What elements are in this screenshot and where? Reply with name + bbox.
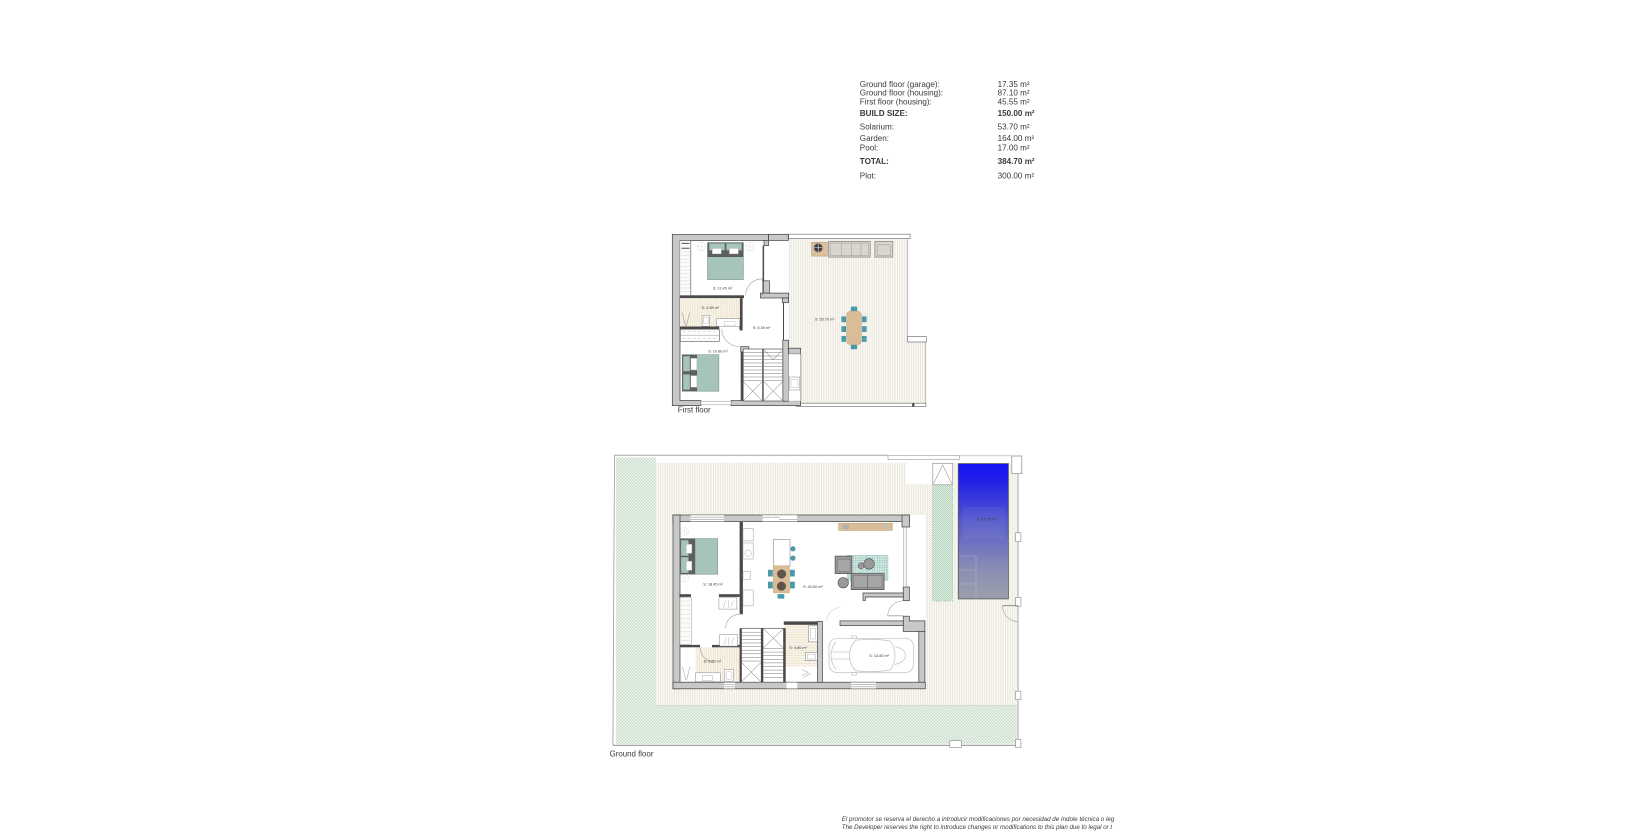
- svg-text:150.00 m²: 150.00 m²: [998, 109, 1035, 118]
- svg-text:87.10 m²: 87.10 m²: [998, 89, 1030, 98]
- svg-text:BUILD SIZE:: BUILD SIZE:: [860, 109, 908, 118]
- svg-text:S: 4.80 m²: S: 4.80 m²: [789, 646, 807, 650]
- svg-text:17.00 m²: 17.00 m²: [998, 143, 1030, 152]
- svg-text:TOTAL:: TOTAL:: [860, 157, 889, 166]
- svg-text:S: 10.60 m²: S: 10.60 m²: [708, 350, 728, 354]
- svg-text:First floor: First floor: [678, 406, 711, 415]
- svg-text:300.00 m²: 300.00 m²: [998, 171, 1035, 180]
- svg-text:S: 11.45 m²: S: 11.45 m²: [713, 286, 733, 290]
- svg-text:Solarium:: Solarium:: [860, 123, 894, 132]
- svg-text:Pool:: Pool:: [860, 143, 878, 152]
- svg-text:17.35 m²: 17.35 m²: [998, 80, 1030, 89]
- svg-text:Ground floor (housing):: Ground floor (housing):: [860, 89, 943, 98]
- svg-text:El promotor se reserva el dere: El promotor se reserva el derecho a intr…: [842, 816, 1115, 823]
- svg-text:S: 53.70 m²: S: 53.70 m²: [815, 318, 835, 322]
- svg-text:S: 4.38 m²: S: 4.38 m²: [702, 306, 720, 310]
- svg-text:Plot:: Plot:: [860, 171, 876, 180]
- svg-text:53.70 m²: 53.70 m²: [998, 123, 1030, 132]
- svg-text:S: 17.00 m²: S: 17.00 m²: [977, 518, 997, 522]
- svg-text:384.70 m²: 384.70 m²: [998, 157, 1035, 166]
- svg-text:Ground floor: Ground floor: [610, 750, 654, 759]
- svg-text:164.00 m²: 164.00 m²: [998, 134, 1035, 143]
- svg-text:S: 13.80 m²: S: 13.80 m²: [869, 654, 889, 658]
- svg-text:S: 5.85 m²: S: 5.85 m²: [704, 659, 722, 663]
- svg-text:Garden:: Garden:: [860, 134, 889, 143]
- svg-text:First floor (housing):: First floor (housing):: [860, 97, 932, 106]
- svg-text:Ground floor (garage):: Ground floor (garage):: [860, 80, 940, 89]
- svg-text:S: 18.45 m²: S: 18.45 m²: [703, 582, 723, 586]
- svg-text:S: 5.05 m²: S: 5.05 m²: [753, 326, 771, 330]
- svg-text:The Developer reserves the rig: The Developer reserves the right to intr…: [842, 824, 1113, 831]
- svg-text:45.55 m²: 45.55 m²: [998, 97, 1030, 106]
- svg-text:S: 40.60 m²: S: 40.60 m²: [803, 585, 823, 589]
